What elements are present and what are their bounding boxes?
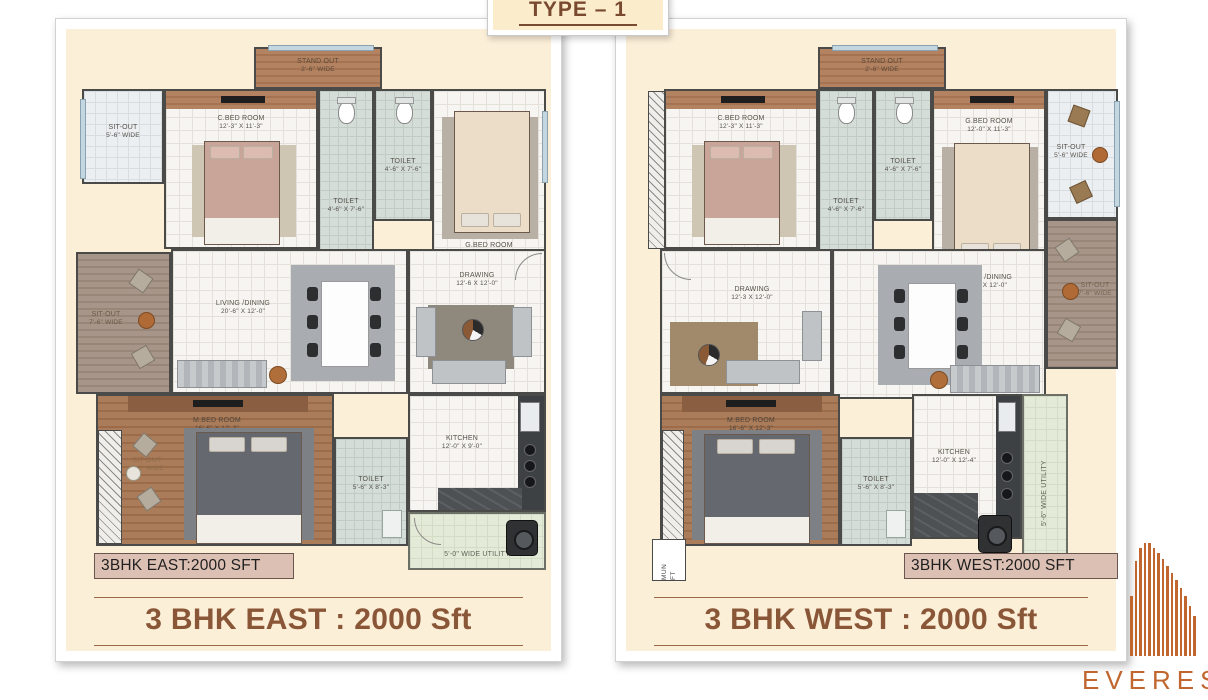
room-label: SIT-OUT 7'-6" WIDE — [80, 310, 132, 328]
window — [1114, 101, 1120, 207]
dining-chair — [370, 287, 381, 301]
room-dim: 4'-6" X 7'-6" — [820, 206, 872, 215]
caption-rule-top — [654, 597, 1088, 598]
floorplan-panel-east: STAND OUT 2'-6" WIDE SIT-OUT 5'-6" WIDE — [55, 18, 562, 662]
caption-rule-bottom — [654, 645, 1088, 646]
room-dim: 12'-0" X 12'-4" — [914, 457, 994, 466]
room-c-bed: C.BED ROOM 12'-3" X 11'-3" — [664, 89, 818, 249]
dining-chair — [894, 317, 905, 331]
room-name: STAND OUT — [820, 57, 944, 66]
coffee-table — [698, 344, 720, 366]
washing-machine-icon — [978, 515, 1012, 553]
room-name: M.BED ROOM — [676, 416, 826, 425]
room-toilet-2: TOILET 4'-6" X 7'-6" — [374, 89, 432, 221]
room-label: TOILET 5'-6" X 8'-3" — [336, 475, 406, 493]
stove-burner — [1001, 488, 1013, 500]
room-label: TOILET 4'-6" X 7'-6" — [320, 197, 372, 215]
dining-chair — [370, 315, 381, 329]
toilet-icon — [838, 101, 855, 124]
bed-sheet — [197, 515, 301, 543]
panel-east-background: STAND OUT 2'-6" WIDE SIT-OUT 5'-6" WIDE — [66, 29, 551, 651]
stove-burner — [524, 460, 536, 472]
room-name: KITCHEN — [914, 448, 994, 457]
bed-sheet — [205, 218, 279, 244]
type-header-inner: TYPE – 1 — [493, 0, 663, 30]
room-name: TOILET — [842, 475, 910, 484]
chair — [132, 432, 157, 457]
bed-sheet — [705, 218, 779, 244]
bed — [704, 434, 810, 544]
room-name: SIT-OUT — [1072, 281, 1118, 290]
dining-chair — [370, 343, 381, 357]
room-dim: 12'-0" X 11'-3" — [934, 126, 1044, 135]
room-dim: 5'-6" X 8'-3" — [336, 484, 406, 493]
room-c-bed: C.BED ROOM 12'-3" X 11'-3" — [164, 89, 318, 249]
stove-burner — [1001, 452, 1013, 464]
room-label: TOILET 5'-6" X 8'-3" — [842, 475, 910, 493]
room-dim: 5'-6" X 8'-3" — [842, 484, 910, 493]
tv-unit-icon — [193, 400, 243, 407]
side-table — [269, 366, 287, 384]
counter-marble — [914, 493, 978, 537]
shower-tray — [382, 510, 402, 538]
coffee-table — [462, 319, 484, 341]
sink — [520, 402, 540, 432]
room-dim: 4'-6" X 7'-6" — [320, 206, 372, 215]
room-label: SIT-OUT 7'-6" WIDE — [1072, 281, 1118, 299]
slide: TYPE – 1 STAND OUT 2'-6" WIDE SIT-OUT 5'… — [0, 0, 1208, 700]
room-label: C.BED ROOM 12'-3" X 11'-3" — [166, 114, 316, 132]
room-toilet-master: TOILET 5'-6" X 8'-3" — [840, 437, 912, 546]
dining-chair — [957, 345, 968, 359]
room-name: SIT-OUT — [80, 310, 132, 319]
side-table — [138, 312, 155, 329]
bed — [454, 111, 530, 233]
floorplan-east: STAND OUT 2'-6" WIDE SIT-OUT 5'-6" WIDE — [76, 47, 546, 582]
armchair — [802, 311, 822, 361]
door-arc — [664, 253, 691, 280]
tv-unit-icon — [721, 96, 765, 103]
building-icon — [1130, 543, 1196, 656]
bed — [954, 143, 1030, 263]
room-toilet-1: TOILET 4'-6" X 7'-6" — [818, 89, 874, 257]
pillow — [209, 437, 245, 452]
room-name: M.BED ROOM — [142, 416, 292, 425]
room-name: 5'-6" WIDE UTILITY — [1040, 410, 1049, 576]
room-label: C.BED ROOM 12'-3" X 11'-3" — [666, 114, 816, 132]
room-dim: 12'-0" X 9'-0" — [416, 443, 508, 452]
bed — [204, 141, 280, 245]
room-label: SIT-OUT 5'-6" WIDE — [84, 123, 162, 141]
room-label: TOILET 4'-6" X 7'-6" — [820, 197, 872, 215]
room-kitchen: KITCHEN 12'-0" X 9'-0" — [408, 394, 546, 512]
room-label: G.BED ROOM 12'-0" X 11'-3" — [934, 117, 1044, 135]
counter-marble — [438, 488, 522, 510]
room-name: G.BED ROOM — [934, 117, 1044, 126]
window — [542, 111, 548, 183]
stove-burner — [524, 444, 536, 456]
dining-chair — [894, 289, 905, 303]
room-dim: 4'-6" X 7'-6" — [876, 166, 930, 175]
wardrobe-hatch — [98, 430, 122, 544]
room-name: LIVING /DINING — [187, 299, 299, 308]
sink — [998, 402, 1016, 432]
door-arc — [414, 518, 441, 545]
room-dim: 2'-6" WIDE — [256, 66, 380, 75]
room-living-dining: LIVING /DINING 20'-6" X 12'-0" — [171, 249, 408, 394]
chair — [131, 345, 156, 370]
toilet-icon — [396, 101, 413, 124]
chair — [1054, 237, 1079, 262]
room-label: SIT-OUT 5'-6" WIDE — [1050, 143, 1092, 161]
room-name: DRAWING — [702, 285, 802, 294]
room-name: C.BED ROOM — [666, 114, 816, 123]
chair — [128, 268, 153, 293]
everest-logo: EVEREST — [1082, 542, 1208, 700]
room-name: SIT-OUT — [1050, 143, 1092, 152]
chair — [1057, 318, 1082, 343]
dining-chair — [894, 345, 905, 359]
logo-text: EVEREST — [1082, 665, 1208, 696]
room-toilet-1: TOILET 4'-6" X 7'-6" — [318, 89, 374, 257]
room-label: LIVING /DINING 20'-6" X 12'-0" — [187, 299, 299, 317]
stove-burner — [1001, 470, 1013, 482]
lift-label: FT — [670, 543, 677, 580]
door-arc — [515, 253, 542, 280]
dining-chair — [307, 343, 318, 357]
pillow — [717, 439, 753, 454]
side-table — [930, 371, 948, 389]
window — [832, 45, 938, 51]
toilet-icon — [896, 101, 913, 124]
room-dim: 2'-6" WIDE — [820, 66, 944, 75]
pillow — [710, 146, 740, 159]
room-label: KITCHEN 12'-0" X 9'-0" — [416, 434, 508, 452]
dining-table — [321, 281, 369, 367]
room-dim: 12'-3" X 11'-3" — [666, 123, 816, 132]
room-name: C.BED ROOM — [166, 114, 316, 123]
room-m-bed: M.BED ROOM 16'-6" X 12'-3" SIT-OUT 5'-6"… — [96, 394, 334, 546]
room-dim: 12'-3" X 11'-3" — [166, 123, 316, 132]
floorplan-west: STAND OUT 2'-6" WIDE C.BED ROOM 12'-3" X… — [648, 47, 1118, 582]
type-header-box: TYPE – 1 — [487, 0, 669, 36]
room-sit-out-side: SIT-OUT 7'-6" WIDE — [1046, 219, 1118, 369]
bed — [704, 141, 780, 245]
room-drawing: DRAWING 12'-6 X 12'-0" — [408, 249, 546, 394]
room-dim: 12'-6 X 12'-0" — [410, 280, 544, 289]
tv-unit-icon — [970, 96, 1014, 103]
pillow — [210, 146, 240, 159]
room-stand-out: STAND OUT 2'-6" WIDE — [254, 47, 382, 89]
bed-sheet — [705, 517, 809, 543]
room-utility: 5'-6" WIDE UTILITY — [1022, 394, 1068, 564]
side-table — [126, 466, 141, 481]
room-dim: 5'-6" WIDE — [1050, 152, 1092, 161]
room-label: DRAWING 12'-3 X 12'-0" — [702, 285, 802, 303]
chair — [136, 486, 161, 511]
lift-box: MUN FT — [652, 539, 686, 581]
room-sit-out-side: SIT-OUT 7'-6" WIDE — [76, 252, 171, 394]
dining-chair — [957, 317, 968, 331]
room-name: TOILET — [876, 157, 930, 166]
tv-unit-icon — [221, 96, 265, 103]
room-drawing: DRAWING 12'-3 X 12'-0" — [660, 249, 832, 394]
pillow — [493, 213, 521, 227]
room-name: SIT-OUT — [118, 456, 176, 465]
room-sit-out-top: SIT-OUT 5'-6" WIDE — [82, 89, 164, 184]
stove-burner — [524, 476, 536, 488]
room-dim: 4'-6" X 7'-6" — [376, 166, 430, 175]
bed — [196, 432, 302, 544]
chair — [1069, 180, 1093, 204]
room-label: 5'-6" WIDE UTILITY — [1040, 410, 1049, 576]
room-name: STAND OUT — [256, 57, 380, 66]
sofa — [177, 360, 267, 388]
room-sit-out-top: SIT-OUT 5'-6" WIDE — [1046, 89, 1118, 219]
room-dim: 7'-6" WIDE — [1072, 290, 1118, 299]
dining-chair — [307, 315, 318, 329]
room-living-dining: LIVING /DINING 20'-9" X 12'-0" — [832, 249, 1046, 399]
room-name: TOILET — [336, 475, 406, 484]
room-dim: 5'-6" WIDE — [84, 132, 162, 141]
room-label: STAND OUT 2'-6" WIDE — [256, 57, 380, 75]
toilet-icon — [338, 101, 355, 124]
room-utility: 5'-0" WIDE UTILITY — [408, 512, 546, 570]
room-m-bed: M.BED ROOM 16'-6" X 12'-3" — [660, 394, 840, 546]
badge-text: 3BHK WEST:2000 SFT — [911, 557, 1075, 575]
room-toilet-master: TOILET 5'-6" X 8'-3" — [334, 437, 408, 546]
panel-west-background: STAND OUT 2'-6" WIDE C.BED ROOM 12'-3" X… — [626, 29, 1116, 651]
wardrobe-hatch — [662, 430, 684, 542]
room-label: TOILET 4'-6" X 7'-6" — [376, 157, 430, 175]
pillow — [243, 146, 273, 159]
floorplan-panel-west: STAND OUT 2'-6" WIDE C.BED ROOM 12'-3" X… — [615, 18, 1127, 662]
room-name: KITCHEN — [416, 434, 508, 443]
plan-badge-east: 3BHK EAST:2000 SFT — [94, 553, 294, 579]
room-dim: 7'-6" WIDE — [80, 319, 132, 328]
armchair — [416, 307, 436, 357]
sofa — [432, 360, 506, 384]
lift-label: MUN — [661, 543, 668, 580]
room-dim: 20'-6" X 12'-0" — [187, 308, 299, 317]
plan-caption-east: 3 BHK EAST : 2000 Sft — [66, 603, 551, 637]
room-label: KITCHEN 12'-0" X 12'-4" — [914, 448, 994, 466]
pillow — [251, 437, 287, 452]
pillow — [759, 439, 795, 454]
tv-unit-icon — [726, 400, 776, 407]
room-stand-out: STAND OUT 2'-6" WIDE — [818, 47, 946, 89]
plan-caption-west: 3 BHK WEST : 2000 Sft — [626, 603, 1116, 637]
type-title: TYPE – 1 — [519, 0, 637, 26]
badge-text: 3BHK EAST:2000 SFT — [101, 557, 261, 575]
dining-table — [908, 283, 956, 369]
caption-rule-bottom — [94, 645, 523, 646]
armchair — [512, 307, 532, 357]
room-toilet-2: TOILET 4'-6" X 7'-6" — [874, 89, 932, 221]
room-name: SIT-OUT — [84, 123, 162, 132]
window — [268, 45, 374, 51]
shower-tray — [886, 510, 906, 538]
chair — [1067, 104, 1090, 127]
sofa — [950, 365, 1040, 393]
room-name: TOILET — [376, 157, 430, 166]
room-dim: 12'-3 X 12'-0" — [702, 294, 802, 303]
room-name: TOILET — [820, 197, 872, 206]
pillow — [461, 213, 489, 227]
room-label: STAND OUT 2'-6" WIDE — [820, 57, 944, 75]
room-name: TOILET — [320, 197, 372, 206]
dining-chair — [957, 289, 968, 303]
washing-machine-icon — [506, 520, 538, 556]
pillow — [743, 146, 773, 159]
room-label: TOILET 4'-6" X 7'-6" — [876, 157, 930, 175]
caption-rule-top — [94, 597, 523, 598]
side-table — [1092, 147, 1108, 163]
dining-chair — [307, 287, 318, 301]
sofa — [726, 360, 800, 384]
